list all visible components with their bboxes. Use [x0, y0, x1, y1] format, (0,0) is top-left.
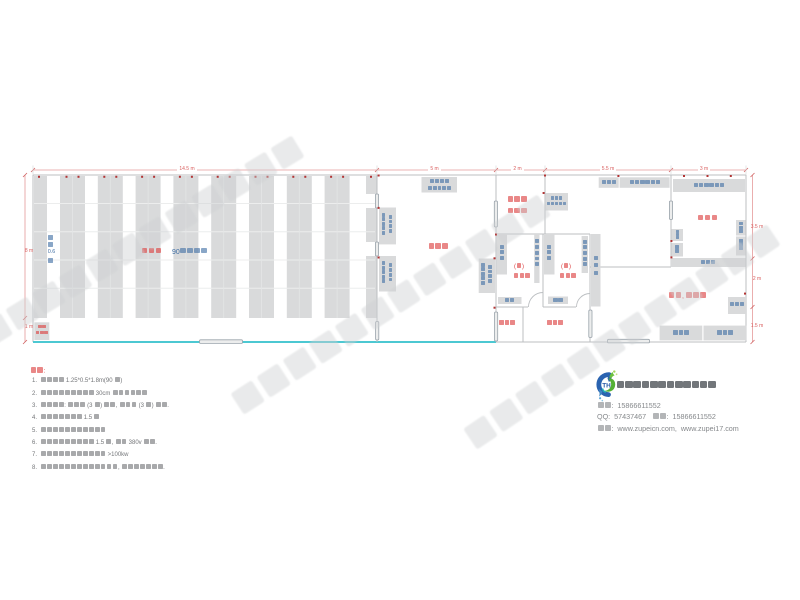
svg-text:TH: TH	[602, 383, 611, 390]
